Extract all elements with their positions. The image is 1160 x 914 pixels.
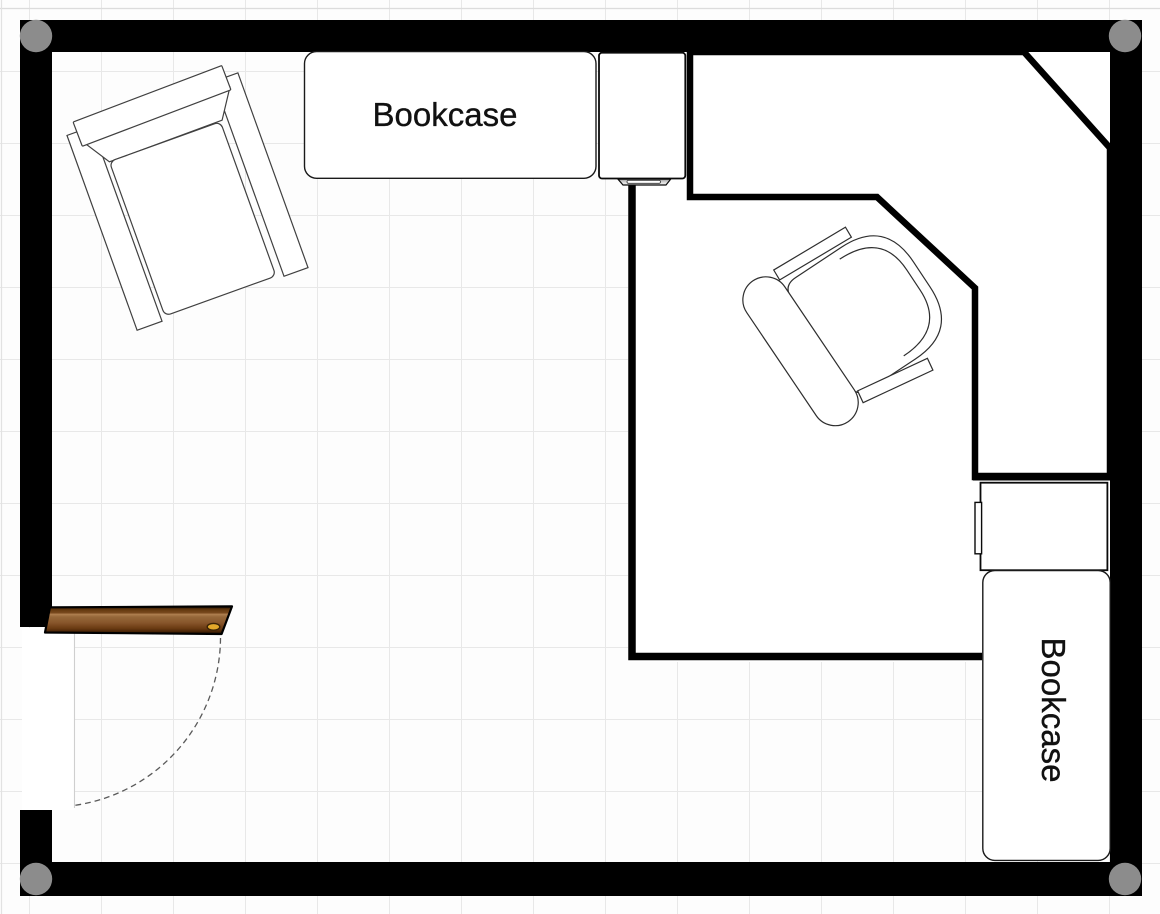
svg-text:Bookcase: Bookcase [1035, 638, 1072, 783]
svg-text:Bookcase: Bookcase [373, 96, 518, 133]
